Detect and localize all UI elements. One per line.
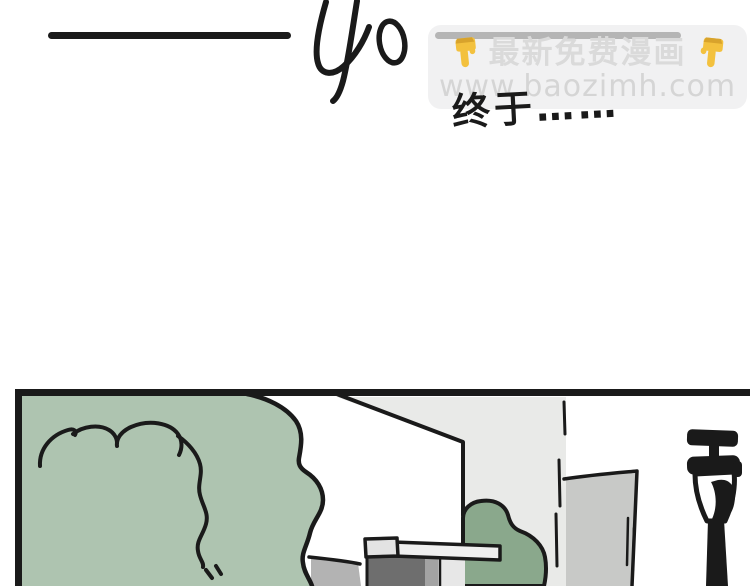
comic-panel (0, 388, 750, 586)
chapter-number-handwriting (298, 0, 418, 112)
door (367, 556, 465, 586)
lamp-pole (706, 520, 728, 586)
point-down-emoji-icon (696, 35, 726, 71)
point-down-emoji-icon (450, 35, 480, 71)
pillar (566, 471, 637, 586)
street-lamp (687, 429, 742, 586)
watermark-title: 最新免费漫画 (489, 38, 687, 69)
chapter-divider-line (48, 32, 291, 39)
comic-page: { "page": { "background": "#ffffff", "in… (0, 0, 750, 586)
caption-text: 终于…… (451, 84, 621, 135)
watermark-line1: 最新免费漫画 (428, 33, 747, 73)
panel-border-left (15, 389, 22, 586)
chapter-number: 40 (0, 0, 1, 1)
panel-border-top (15, 389, 750, 396)
bush-large (17, 393, 323, 586)
